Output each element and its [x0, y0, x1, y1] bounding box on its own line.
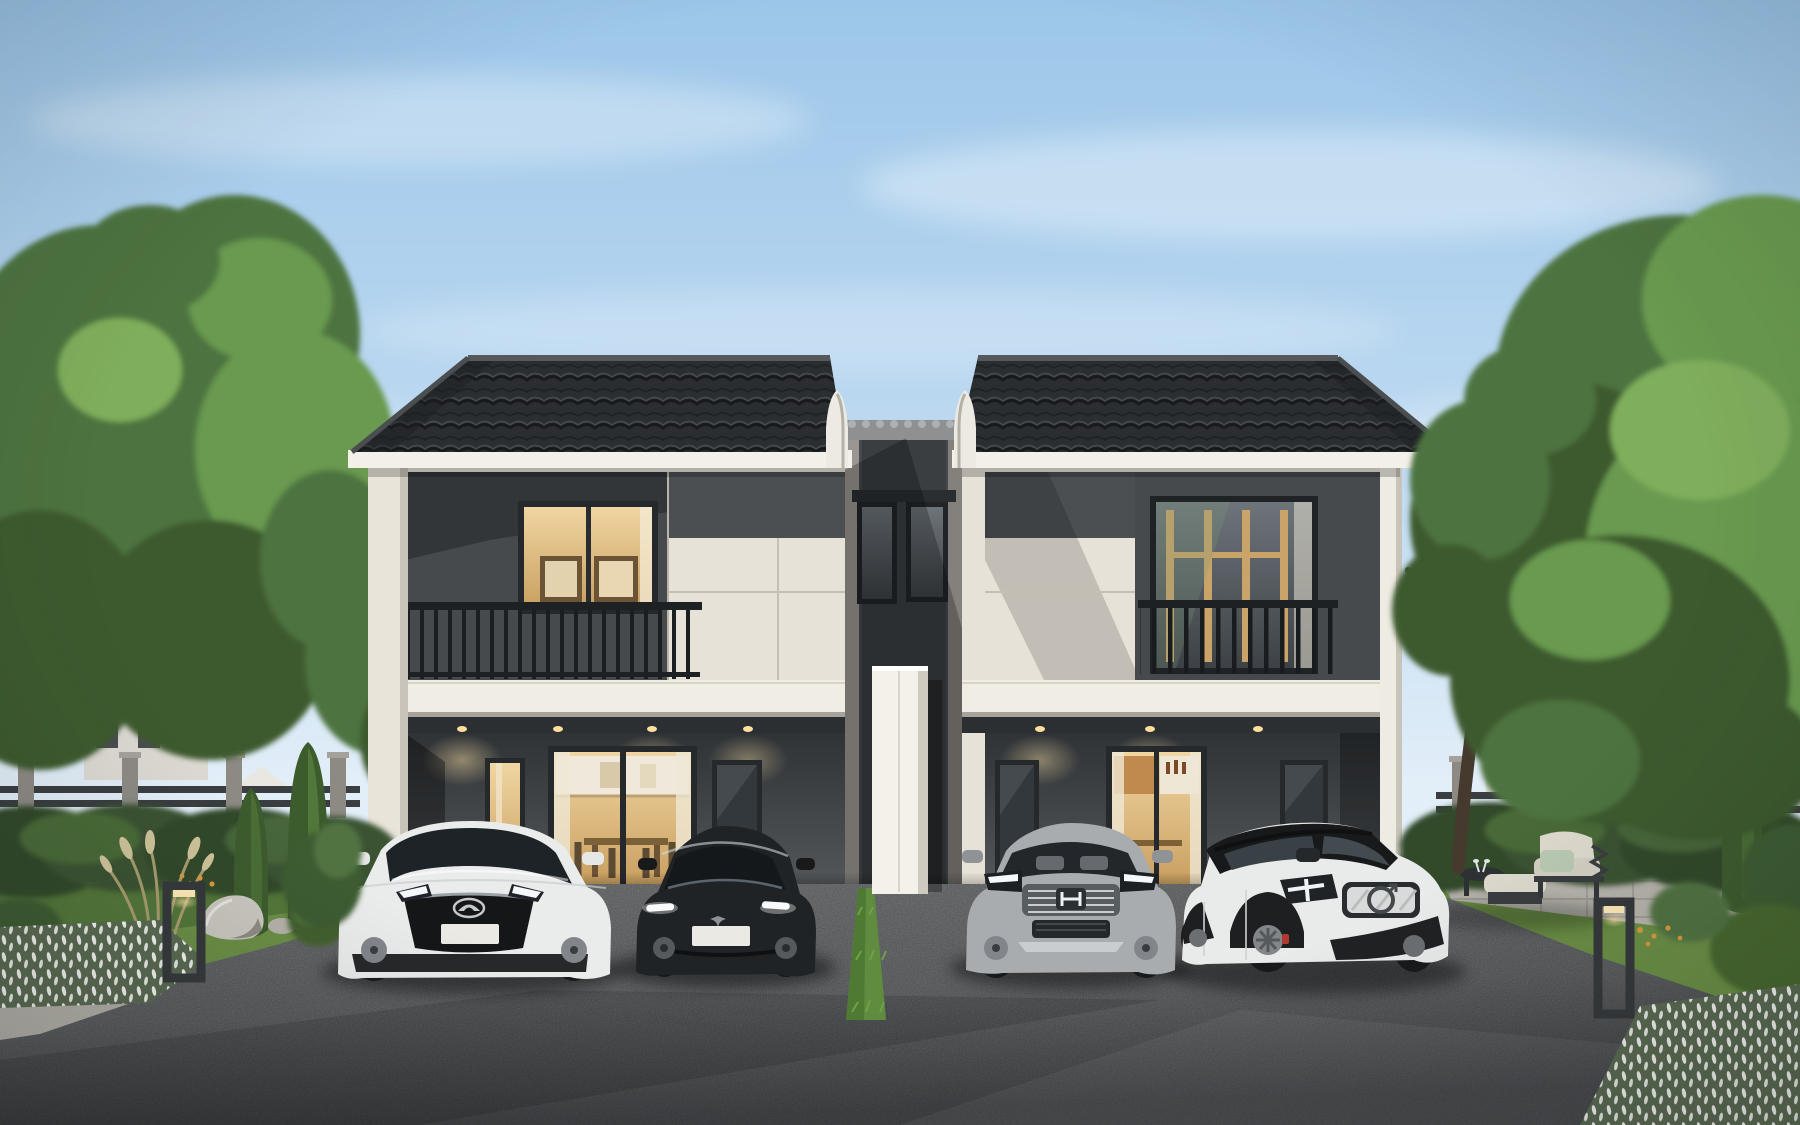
architectural-rendering [0, 0, 1800, 1125]
scene-canvas [0, 0, 1800, 1125]
vignette [0, 0, 1800, 1125]
